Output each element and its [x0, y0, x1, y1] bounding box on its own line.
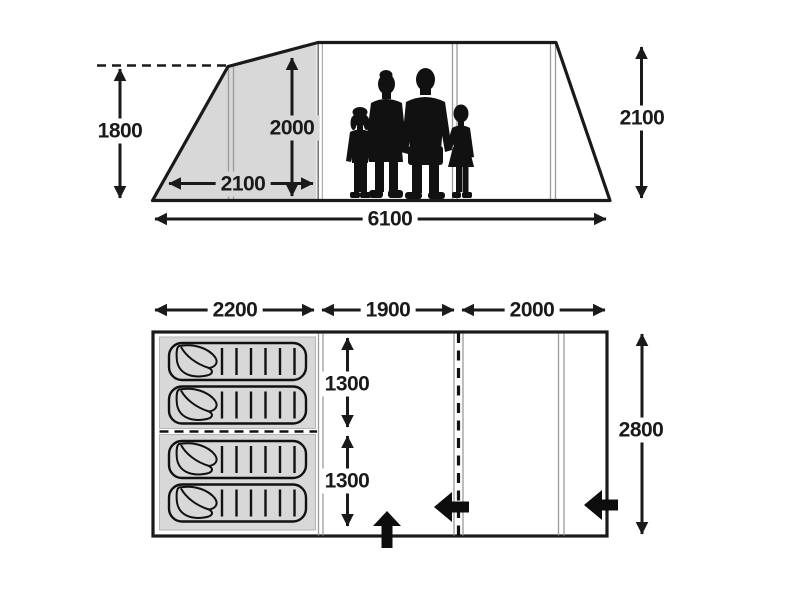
side-view: [97, 43, 642, 220]
floor-plan: [153, 310, 642, 548]
dim-label-ridge-height: 2100: [615, 106, 670, 131]
sleeping-bag: [169, 387, 306, 424]
dim-label-front-width: 2000: [505, 298, 560, 323]
dim-label-total-length: 6100: [363, 207, 418, 232]
dim-label-bedroom-width: 2200: [208, 298, 263, 323]
dim-label-middle-width: 1900: [361, 298, 416, 323]
family-silhouette-icon: [346, 68, 474, 199]
tent-dimension-diagram: 1800 2000 2100 2100 6100 2200 1900 2000 …: [0, 0, 800, 600]
dim-label-overall-depth: 2800: [614, 418, 669, 443]
dim-label-porch-depth: 2100: [216, 172, 271, 197]
dim-label-lower-bed-length: 1300: [320, 469, 375, 494]
sleeping-bag: [169, 485, 306, 522]
sleeping-bag: [169, 441, 306, 478]
dim-label-porch-peak-height: 1800: [93, 119, 148, 144]
dim-label-upper-bed-length: 1300: [320, 372, 375, 397]
sleeping-bag: [169, 343, 306, 380]
dim-label-inner-height: 2000: [265, 116, 320, 141]
